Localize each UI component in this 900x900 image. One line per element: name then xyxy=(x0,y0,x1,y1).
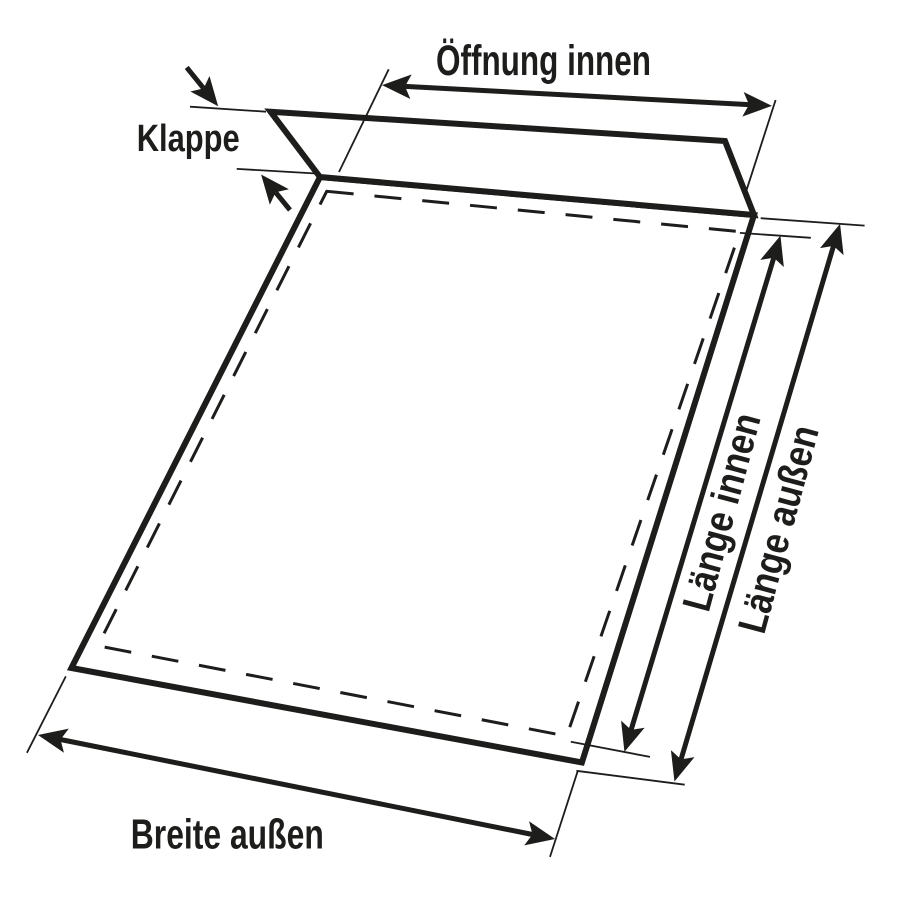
svg-text:Öffnung innen: Öffnung innen xyxy=(436,38,651,85)
svg-text:Klappe: Klappe xyxy=(137,118,240,160)
svg-text:Breite außen: Breite außen xyxy=(131,811,324,858)
